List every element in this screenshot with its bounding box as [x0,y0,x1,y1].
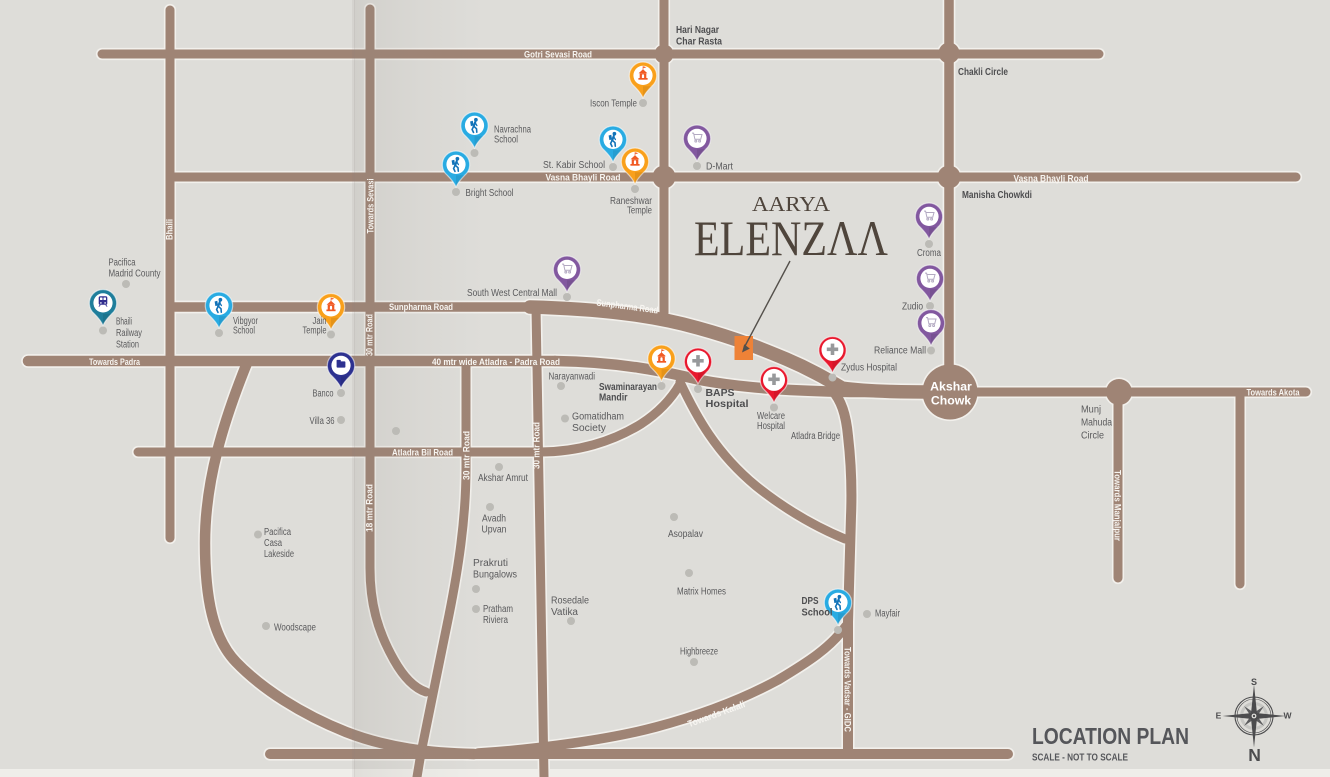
svg-text:Mahuda: Mahuda [1081,418,1113,429]
svg-text:SCALE - NOT TO SCALE: SCALE - NOT TO SCALE [1032,752,1128,764]
svg-text:Station: Station [116,340,139,351]
svg-text:Bhaili: Bhaili [116,317,132,328]
svg-text:Casa: Casa [264,538,282,549]
svg-text:Sunpharma Road: Sunpharma Road [389,302,453,313]
svg-text:Towards Vadsar - GIDC: Towards Vadsar - GIDC [842,647,853,732]
svg-text:Chowk: Chowk [931,394,971,408]
svg-text:Hospital: Hospital [706,399,749,410]
svg-text:Akshar Amrut: Akshar Amrut [478,473,528,484]
svg-text:N: N [1248,745,1261,765]
svg-text:St. Kabir School: St. Kabir School [543,160,605,171]
svg-text:Pratham: Pratham [483,604,513,615]
svg-text:Towards Akota: Towards Akota [1247,388,1301,399]
svg-text:Avadh: Avadh [482,514,506,525]
svg-text:Asopalav: Asopalav [668,529,703,540]
svg-text:D-Mart: D-Mart [706,162,733,173]
svg-text:Bhaili: Bhaili [165,219,176,240]
svg-text:40 mtr wide Atladra - Padra Ro: 40 mtr wide Atladra - Padra Road [432,357,560,367]
svg-text:Riviera: Riviera [483,615,508,626]
svg-text:Atladra Bridge: Atladra Bridge [791,431,840,442]
svg-text:Chakli Circle: Chakli Circle [958,67,1009,78]
svg-text:Rosedale: Rosedale [551,596,589,607]
svg-text:Banco: Banco [313,389,334,400]
svg-text:Vasna Bhayli Road: Vasna Bhayli Road [1014,174,1089,185]
svg-text:E: E [1216,711,1222,721]
svg-text:Railway: Railway [116,328,142,339]
svg-text:Zudio: Zudio [902,302,923,313]
svg-text:Pacifica: Pacifica [109,258,136,269]
svg-text:30 mtr Road: 30 mtr Road [462,431,473,480]
svg-text:School: School [802,608,833,619]
svg-text:Matrix Homes: Matrix Homes [677,587,726,598]
svg-text:LOCATION PLAN: LOCATION PLAN [1032,723,1189,749]
svg-text:Hari Nagar: Hari Nagar [676,25,719,36]
svg-text:S: S [1251,677,1257,687]
svg-text:W: W [1283,711,1292,721]
svg-text:Lakeside: Lakeside [264,549,294,560]
svg-text:BAPS: BAPS [706,388,736,399]
svg-text:Gomatidham: Gomatidham [572,412,624,423]
svg-text:Mayfair: Mayfair [875,609,901,620]
svg-text:School: School [233,326,255,337]
svg-text:Bungalows: Bungalows [473,570,517,581]
svg-text:30 mtr Road: 30 mtr Road [365,314,376,356]
svg-text:Towards Manjalpur: Towards Manjalpur [1112,470,1123,541]
svg-text:Akshar: Akshar [930,380,972,394]
svg-text:Manisha Chowkdi: Manisha Chowkdi [962,190,1032,201]
svg-text:Hospital: Hospital [757,421,785,432]
svg-text:Towards Sevasi: Towards Sevasi [366,179,377,234]
svg-text:Highbreeze: Highbreeze [680,647,718,658]
svg-text:Swaminarayan: Swaminarayan [599,382,657,393]
svg-text:Gotri Sevasi Road: Gotri Sevasi Road [524,50,592,61]
svg-text:South West Central Mall: South West Central Mall [467,288,557,299]
svg-text:Pacifica: Pacifica [264,527,291,538]
svg-text:Circle: Circle [1081,431,1104,442]
svg-text:School: School [494,135,518,146]
svg-text:18 mtr Road: 18 mtr Road [365,484,376,532]
svg-text:Upvan: Upvan [482,525,507,536]
svg-text:Munj: Munj [1081,405,1101,416]
svg-text:Zydus Hospital: Zydus Hospital [841,363,897,374]
svg-text:Char Rasta: Char Rasta [676,37,723,48]
svg-text:Temple: Temple [303,326,327,337]
svg-text:Prakruti: Prakruti [473,558,508,569]
svg-text:Croma: Croma [917,248,941,259]
svg-text:Vasna Bhayli Road: Vasna Bhayli Road [546,173,621,184]
svg-text:DPS: DPS [802,596,819,607]
svg-text:Towards Padra: Towards Padra [89,357,141,368]
svg-text:Mandir: Mandir [599,393,628,404]
svg-text:Atladra Bil Road: Atladra Bil Road [392,448,453,459]
svg-text:30 mtr Road: 30 mtr Road [532,422,543,469]
svg-text:Bright School: Bright School [466,188,514,199]
svg-text:Reliance Mall: Reliance Mall [874,346,926,357]
svg-text:ELENZΛΛ: ELENZΛΛ [694,210,888,266]
svg-text:Woodscape: Woodscape [274,623,316,634]
svg-text:Madrid County: Madrid County [109,269,161,280]
svg-text:Villa 36: Villa 36 [310,416,335,427]
svg-text:Vatika: Vatika [551,607,579,618]
svg-text:Temple: Temple [627,206,652,217]
svg-text:Society: Society [572,423,606,434]
svg-text:Narayanwadi: Narayanwadi [549,372,596,383]
svg-text:Iscon Temple: Iscon Temple [590,99,637,110]
